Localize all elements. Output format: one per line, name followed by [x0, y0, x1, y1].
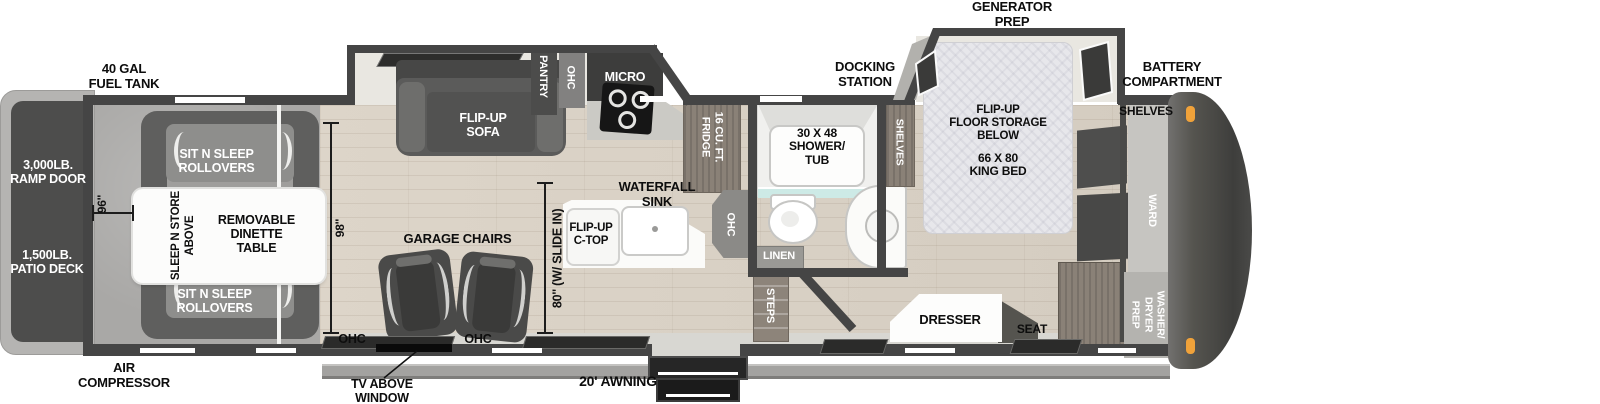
label-flip-up-ctop: FLIP-UP C-TOP [566, 222, 616, 248]
tv-leader-line [384, 351, 417, 378]
label-ohc-island: OHC [700, 194, 760, 254]
label-ward: WARD [1121, 180, 1181, 240]
label-sit-n-sleep-top: SIT N SLEEP ROLLOVERS [154, 147, 279, 175]
label-linen: LINEN [756, 250, 802, 262]
angled-wall [800, 271, 853, 329]
label-fridge: 16 CU. FT. FRIDGE [661, 87, 761, 187]
label-shelves-bath: SHELVES [869, 112, 929, 172]
label-seat: SEAT [1002, 323, 1062, 336]
label-ohc-right: OHC [448, 332, 508, 346]
label-patio-deck: 1,500LB. PATIO DECK [2, 248, 92, 276]
label-dresser: DRESSER [900, 313, 1000, 328]
label-awning: 20' AWNING [538, 374, 698, 390]
label-shower-tub: 30 X 48 SHOWER/ TUB [769, 127, 865, 167]
marker-light-icon [1186, 106, 1195, 122]
label-ohc-left: OHC [322, 332, 382, 346]
label-king-bed: 66 X 80 KING BED [938, 152, 1058, 179]
label-dim-96: 96'' [72, 174, 132, 234]
label-tv-above-window: TV ABOVE WINDOW [320, 377, 444, 404]
label-generator-prep: GENERATOR PREP [942, 0, 1082, 29]
label-steps: STEPS [740, 275, 800, 335]
label-shelves-bedroom: SHELVES [1106, 105, 1186, 118]
label-floor-storage: FLIP-UP FLOOR STORAGE BELOW [928, 104, 1068, 143]
rv-floorplan: 40 GAL FUEL TANK GENERATOR PREP DOCKING … [0, 0, 1600, 404]
label-dim-98: 98'' [310, 198, 370, 258]
label-flip-up-sofa: FLIP-UP SOFA [433, 111, 533, 139]
label-battery-compartment: BATTERY COMPARTMENT [1097, 60, 1247, 89]
label-sleep-n-store: SLEEP N STORE ABOVE [139, 191, 229, 281]
label-docking-station: DOCKING STATION [800, 60, 930, 89]
label-dim-80-slide: 80'' (W/ SLIDE IN) [498, 198, 618, 318]
label-sit-n-sleep-bottom: SIT N SLEEP ROLLOVERS [152, 287, 277, 315]
label-air-compressor: AIR COMPRESSOR [49, 361, 199, 390]
label-washer-dryer-prep: WASHER/ DRYER PREP [1108, 275, 1188, 355]
label-micro: MICRO [587, 70, 663, 84]
label-fuel-tank: 40 GAL FUEL TANK [57, 62, 191, 91]
